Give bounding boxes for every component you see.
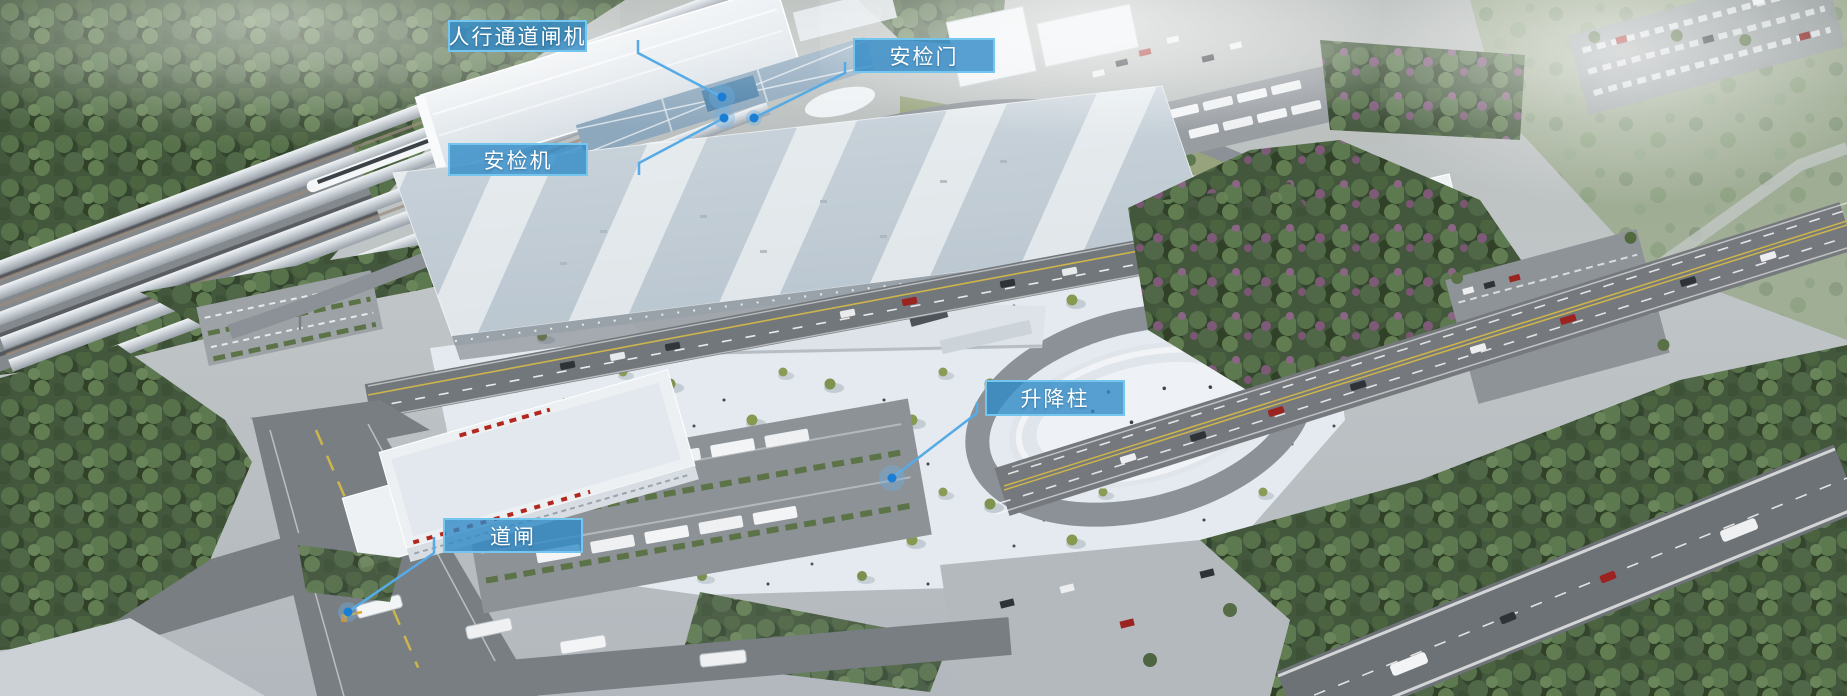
aerial-render-background bbox=[0, 0, 1847, 696]
callout-label-security-door[interactable]: 安检门 bbox=[853, 38, 995, 73]
marker-dot-security-door[interactable] bbox=[750, 114, 759, 123]
callout-label-road-barrier-gate[interactable]: 道闸 bbox=[443, 518, 583, 553]
callout-label-pedestrian-gate-machine[interactable]: 人行通道闸机 bbox=[448, 20, 587, 52]
annotated-station-rendering: 人行通道闸机 安检门 安检机 升降柱 道闸 bbox=[0, 0, 1847, 696]
marker-dot-pedestrian-gate-machine[interactable] bbox=[718, 93, 727, 102]
marker-dot-security-machine[interactable] bbox=[720, 114, 729, 123]
callout-label-lifting-bollard[interactable]: 升降柱 bbox=[985, 380, 1125, 416]
callout-label-security-machine[interactable]: 安检机 bbox=[448, 143, 588, 176]
marker-dot-road-barrier-gate[interactable] bbox=[344, 608, 353, 617]
marker-dot-lifting-bollard[interactable] bbox=[888, 474, 897, 483]
